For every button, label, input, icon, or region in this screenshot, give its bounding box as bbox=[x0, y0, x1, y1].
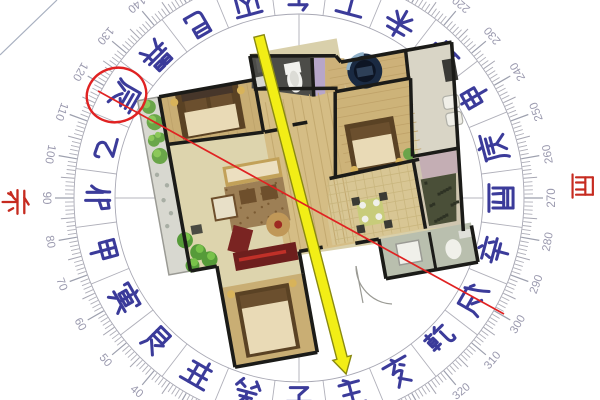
svg-text:270: 270 bbox=[546, 188, 558, 207]
svg-text:90: 90 bbox=[40, 192, 52, 205]
svg-text:80: 80 bbox=[43, 235, 57, 250]
